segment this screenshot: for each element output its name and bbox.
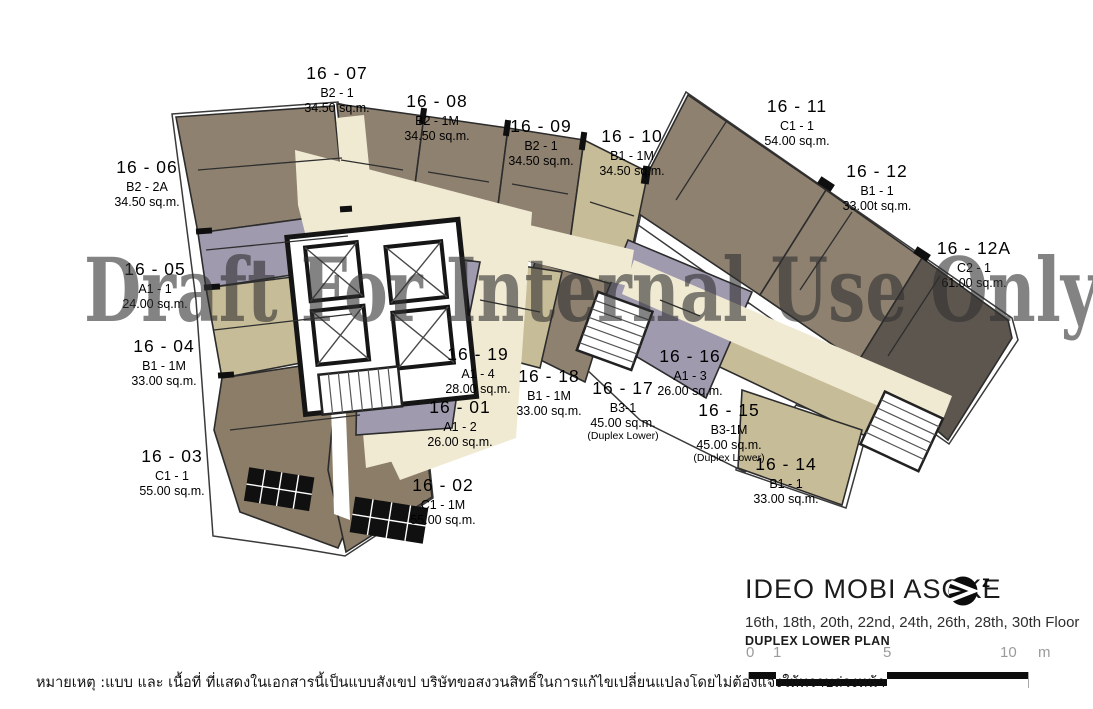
scale-seg-c [887,672,1028,679]
scale-tick-0: 0 [746,644,754,661]
scale-unit: m [1038,644,1051,661]
core-stairs [318,366,402,414]
scale-tick-5: 5 [883,644,891,661]
floor-plan-page: 16 - 06B2 - 2A34.50 sq.m.16 - 07B2 - 134… [0,0,1093,709]
floors-line: 16th, 18th, 20th, 22nd, 24th, 26th, 28th… [745,614,1075,631]
scale-end-right [1028,672,1029,688]
project-title: IDEO MOBI ASOKE [745,574,1075,605]
watermark-text: Draft For Internal Use Only [84,238,1093,342]
disclaimer-note: หมายเหตุ :แบบ และ เนื้อที่ ที่แสดงในเอกส… [36,671,885,694]
title-block: IDEO MOBI ASOKE 16th, 18th, 20th, 22nd, … [745,574,1075,648]
north-z-label: z [982,574,990,591]
scale-tick-10: 10 [1000,644,1017,661]
north-arrow-icon: z [938,570,1008,616]
scale-tick-1: 1 [773,644,781,661]
